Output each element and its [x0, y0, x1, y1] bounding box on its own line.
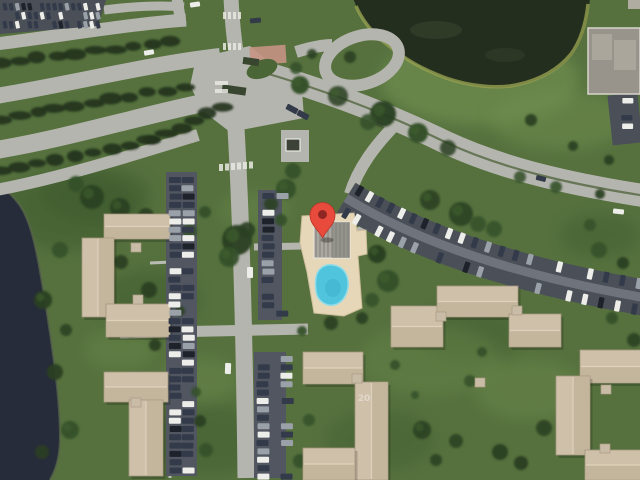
- tree: [514, 456, 528, 470]
- tree: [47, 364, 63, 380]
- crosswalk-stripe: [228, 12, 231, 19]
- tree: [324, 316, 338, 330]
- car: [262, 269, 274, 275]
- shrub-row: [138, 87, 155, 96]
- car: [262, 193, 274, 199]
- shrub-row: [105, 45, 127, 53]
- car: [181, 326, 193, 332]
- car: [170, 268, 182, 274]
- car: [281, 381, 293, 387]
- car: [182, 426, 194, 432]
- shrub-row: [27, 51, 45, 63]
- roof-south-plane: [106, 321, 170, 338]
- pond-reflection: [410, 21, 462, 39]
- tree: [390, 360, 400, 370]
- car: [183, 343, 195, 349]
- car: [257, 398, 269, 404]
- tree: [199, 443, 213, 457]
- roof-south-plane: [437, 302, 518, 318]
- shrub-row: [28, 159, 46, 167]
- car: [281, 364, 293, 370]
- roof-east-plane: [573, 376, 590, 455]
- car: [169, 326, 181, 332]
- car: [257, 474, 269, 480]
- car: [169, 235, 181, 241]
- tree: [604, 155, 614, 165]
- stair-tower: [512, 306, 522, 315]
- tree: [68, 176, 84, 192]
- car: [182, 243, 194, 249]
- tree-highlight: [370, 247, 378, 255]
- crosswalk-stripe: [238, 12, 241, 19]
- building-roof-number: 20: [358, 394, 371, 404]
- roof-south-plane: [104, 227, 170, 240]
- car: [262, 210, 274, 216]
- car: [169, 202, 181, 208]
- tree-highlight: [331, 89, 340, 98]
- tree: [591, 242, 607, 258]
- tree-highlight: [415, 423, 423, 431]
- tree-highlight: [380, 273, 390, 283]
- tree: [303, 414, 315, 426]
- crosswalk-stripe: [215, 89, 228, 93]
- tree: [525, 114, 537, 126]
- car: [250, 18, 261, 24]
- roof-south-plane: [391, 327, 443, 348]
- car: [183, 468, 195, 474]
- car: [262, 294, 274, 300]
- car: [182, 368, 194, 374]
- car: [257, 390, 269, 396]
- car: [168, 385, 180, 391]
- car: [169, 177, 181, 183]
- pool-deep-end: [325, 279, 341, 297]
- shrub-row: [84, 148, 101, 156]
- tree: [60, 324, 72, 336]
- tree-highlight: [36, 293, 44, 301]
- tree-highlight: [279, 182, 288, 191]
- car: [257, 465, 269, 471]
- crosswalk-stripe: [219, 164, 223, 171]
- car: [281, 474, 293, 480]
- pond-reflection: [485, 48, 525, 62]
- gatehouse: [281, 130, 309, 162]
- car: [256, 381, 268, 387]
- car: [182, 235, 194, 241]
- stair-tower: [601, 385, 611, 394]
- car: [169, 293, 181, 299]
- shrub-row: [160, 36, 180, 47]
- car: [169, 185, 181, 191]
- car: [170, 252, 182, 258]
- roof-east-plane: [146, 400, 163, 476]
- car: [169, 368, 181, 374]
- car: [170, 194, 182, 200]
- car: [622, 124, 633, 130]
- tree: [430, 454, 442, 466]
- roof-panel: [614, 40, 636, 70]
- tree: [52, 242, 68, 258]
- car: [263, 227, 275, 233]
- clubhouse-roof-shade: [332, 222, 350, 258]
- shrub-row: [102, 143, 122, 154]
- aerial-imagery: 20: [0, 0, 640, 480]
- stair-tower: [131, 243, 141, 252]
- car: [169, 343, 181, 349]
- car: [622, 98, 633, 104]
- roof-panel: [592, 34, 612, 60]
- tree: [360, 114, 376, 130]
- crosswalk-stripe: [243, 162, 247, 169]
- gatehouse-booth: [286, 139, 300, 151]
- car: [182, 401, 194, 407]
- tree: [191, 387, 201, 397]
- car: [183, 194, 195, 200]
- car: [262, 235, 274, 241]
- car: [183, 202, 195, 208]
- shrub-row: [8, 111, 31, 120]
- shrub-row: [42, 104, 65, 113]
- shrub-row: [67, 150, 84, 162]
- tree: [477, 347, 487, 357]
- crosswalk-stripe: [215, 81, 228, 85]
- car: [169, 376, 181, 382]
- car: [258, 364, 270, 370]
- car: [170, 468, 182, 474]
- car: [181, 443, 193, 449]
- tree: [307, 49, 317, 59]
- road: [104, 6, 184, 10]
- car: [183, 335, 195, 341]
- tree-highlight: [452, 205, 463, 216]
- car: [169, 351, 181, 357]
- shrub-row: [212, 103, 234, 112]
- car: [256, 440, 268, 446]
- tree-highlight: [226, 229, 240, 243]
- shrub-row: [121, 142, 140, 151]
- tree-highlight: [373, 104, 385, 116]
- car: [170, 285, 182, 291]
- car: [183, 210, 195, 216]
- car: [257, 448, 269, 454]
- car: [280, 373, 292, 379]
- car: [182, 318, 194, 324]
- stair-tower: [352, 374, 362, 383]
- tree-highlight: [293, 78, 301, 86]
- shrub-row: [171, 123, 192, 133]
- car: [169, 451, 181, 457]
- car: [170, 426, 182, 432]
- car: [281, 432, 293, 438]
- tree: [606, 312, 618, 324]
- car: [169, 409, 181, 415]
- tree: [344, 51, 356, 63]
- tree: [550, 181, 562, 193]
- car: [169, 443, 181, 449]
- car: [182, 227, 194, 233]
- shrub-row: [8, 162, 30, 173]
- car: [276, 311, 288, 317]
- pin-dot: [318, 210, 327, 219]
- tree: [536, 420, 552, 436]
- car: [281, 440, 293, 446]
- car: [182, 293, 194, 299]
- crosswalk-stripe: [231, 163, 235, 170]
- shrub-row: [84, 46, 107, 54]
- car: [258, 373, 270, 379]
- tree: [464, 375, 476, 387]
- stair-tower: [436, 312, 446, 321]
- tree: [194, 415, 206, 427]
- car: [183, 219, 195, 225]
- stair-tower: [475, 378, 485, 387]
- tree: [275, 214, 287, 226]
- tree: [492, 444, 508, 460]
- car: [282, 398, 294, 404]
- shrub-row: [120, 93, 138, 103]
- stair-tower: [131, 398, 141, 407]
- tree-highlight: [63, 423, 71, 431]
- car: [170, 459, 182, 465]
- shrub-row: [99, 93, 122, 105]
- crosswalk-stripe: [233, 12, 236, 19]
- tree: [595, 189, 605, 199]
- car: [183, 409, 195, 415]
- car: [262, 218, 274, 224]
- tree-highlight: [423, 193, 432, 202]
- car: [262, 252, 274, 258]
- tree: [290, 62, 302, 74]
- car: [281, 423, 293, 429]
- shrub-row: [125, 42, 141, 51]
- shrub-row: [144, 39, 162, 49]
- road: [236, 128, 246, 478]
- building-corner: [628, 0, 640, 9]
- car: [169, 318, 181, 324]
- car: [263, 243, 275, 249]
- car: [257, 406, 269, 412]
- crosswalk-stripe: [225, 164, 229, 171]
- car: [182, 360, 194, 366]
- shrub-row: [10, 57, 30, 66]
- car: [262, 260, 274, 266]
- tree: [514, 171, 526, 183]
- roof-south-plane: [585, 465, 640, 480]
- car: [169, 219, 181, 225]
- car: [169, 335, 181, 341]
- car: [182, 418, 194, 424]
- crosswalk-stripe: [249, 162, 253, 169]
- shrub-row: [46, 154, 64, 166]
- tree: [239, 222, 255, 238]
- car: [182, 376, 194, 382]
- crosswalk-stripe: [238, 43, 241, 50]
- car: [225, 363, 231, 374]
- tree-highlight: [222, 250, 231, 259]
- car: [262, 302, 274, 308]
- car: [182, 177, 194, 183]
- car: [183, 351, 195, 357]
- shrub-row: [63, 101, 85, 111]
- tree-highlight: [113, 201, 122, 210]
- car: [247, 267, 253, 278]
- stair-tower: [133, 295, 143, 304]
- tree-highlight: [83, 188, 94, 199]
- car: [182, 434, 194, 440]
- car: [181, 185, 193, 191]
- car: [181, 451, 193, 457]
- car: [621, 115, 632, 121]
- tree: [297, 326, 307, 336]
- tree: [365, 293, 379, 307]
- shrub-row: [145, 136, 162, 144]
- tree: [617, 257, 629, 269]
- car: [181, 268, 193, 274]
- car: [257, 457, 269, 463]
- tree: [486, 221, 502, 237]
- tree: [149, 339, 161, 351]
- tree: [411, 391, 419, 399]
- tree: [568, 141, 578, 151]
- roof-south-plane: [303, 464, 355, 480]
- car: [170, 393, 182, 399]
- tree-highlight: [411, 126, 420, 135]
- car: [182, 252, 194, 258]
- car: [169, 418, 181, 424]
- crosswalk-stripe: [233, 43, 236, 50]
- tree: [141, 282, 157, 298]
- crosswalk-stripe: [228, 43, 231, 50]
- car: [169, 210, 181, 216]
- tree: [35, 445, 49, 459]
- car: [168, 277, 180, 283]
- car: [281, 356, 293, 362]
- car: [258, 423, 270, 429]
- car: [169, 434, 181, 440]
- tree: [199, 206, 211, 218]
- car: [257, 415, 269, 421]
- car: [262, 277, 274, 283]
- roof-south-plane: [509, 331, 561, 348]
- car: [168, 302, 180, 308]
- car: [277, 193, 289, 199]
- car: [258, 432, 270, 438]
- road: [177, 0, 181, 24]
- tree: [470, 216, 486, 232]
- tree: [285, 163, 301, 179]
- car: [182, 285, 194, 291]
- shrub-row: [158, 87, 177, 97]
- tree: [356, 312, 368, 324]
- car: [169, 310, 181, 316]
- crosswalk-stripe: [237, 163, 241, 170]
- car: [169, 227, 181, 233]
- stair-tower: [600, 444, 610, 453]
- shrub-row: [63, 49, 86, 60]
- crosswalk-stripe: [223, 12, 226, 19]
- car: [170, 243, 182, 249]
- tree: [584, 219, 596, 231]
- tree: [449, 434, 463, 448]
- crosswalk-stripe: [223, 43, 226, 50]
- tree: [440, 140, 456, 156]
- shrub-row: [176, 83, 195, 91]
- tree: [264, 197, 278, 211]
- roof-east-plane: [372, 382, 389, 480]
- satellite-map-canvas[interactable]: 20: [0, 0, 640, 480]
